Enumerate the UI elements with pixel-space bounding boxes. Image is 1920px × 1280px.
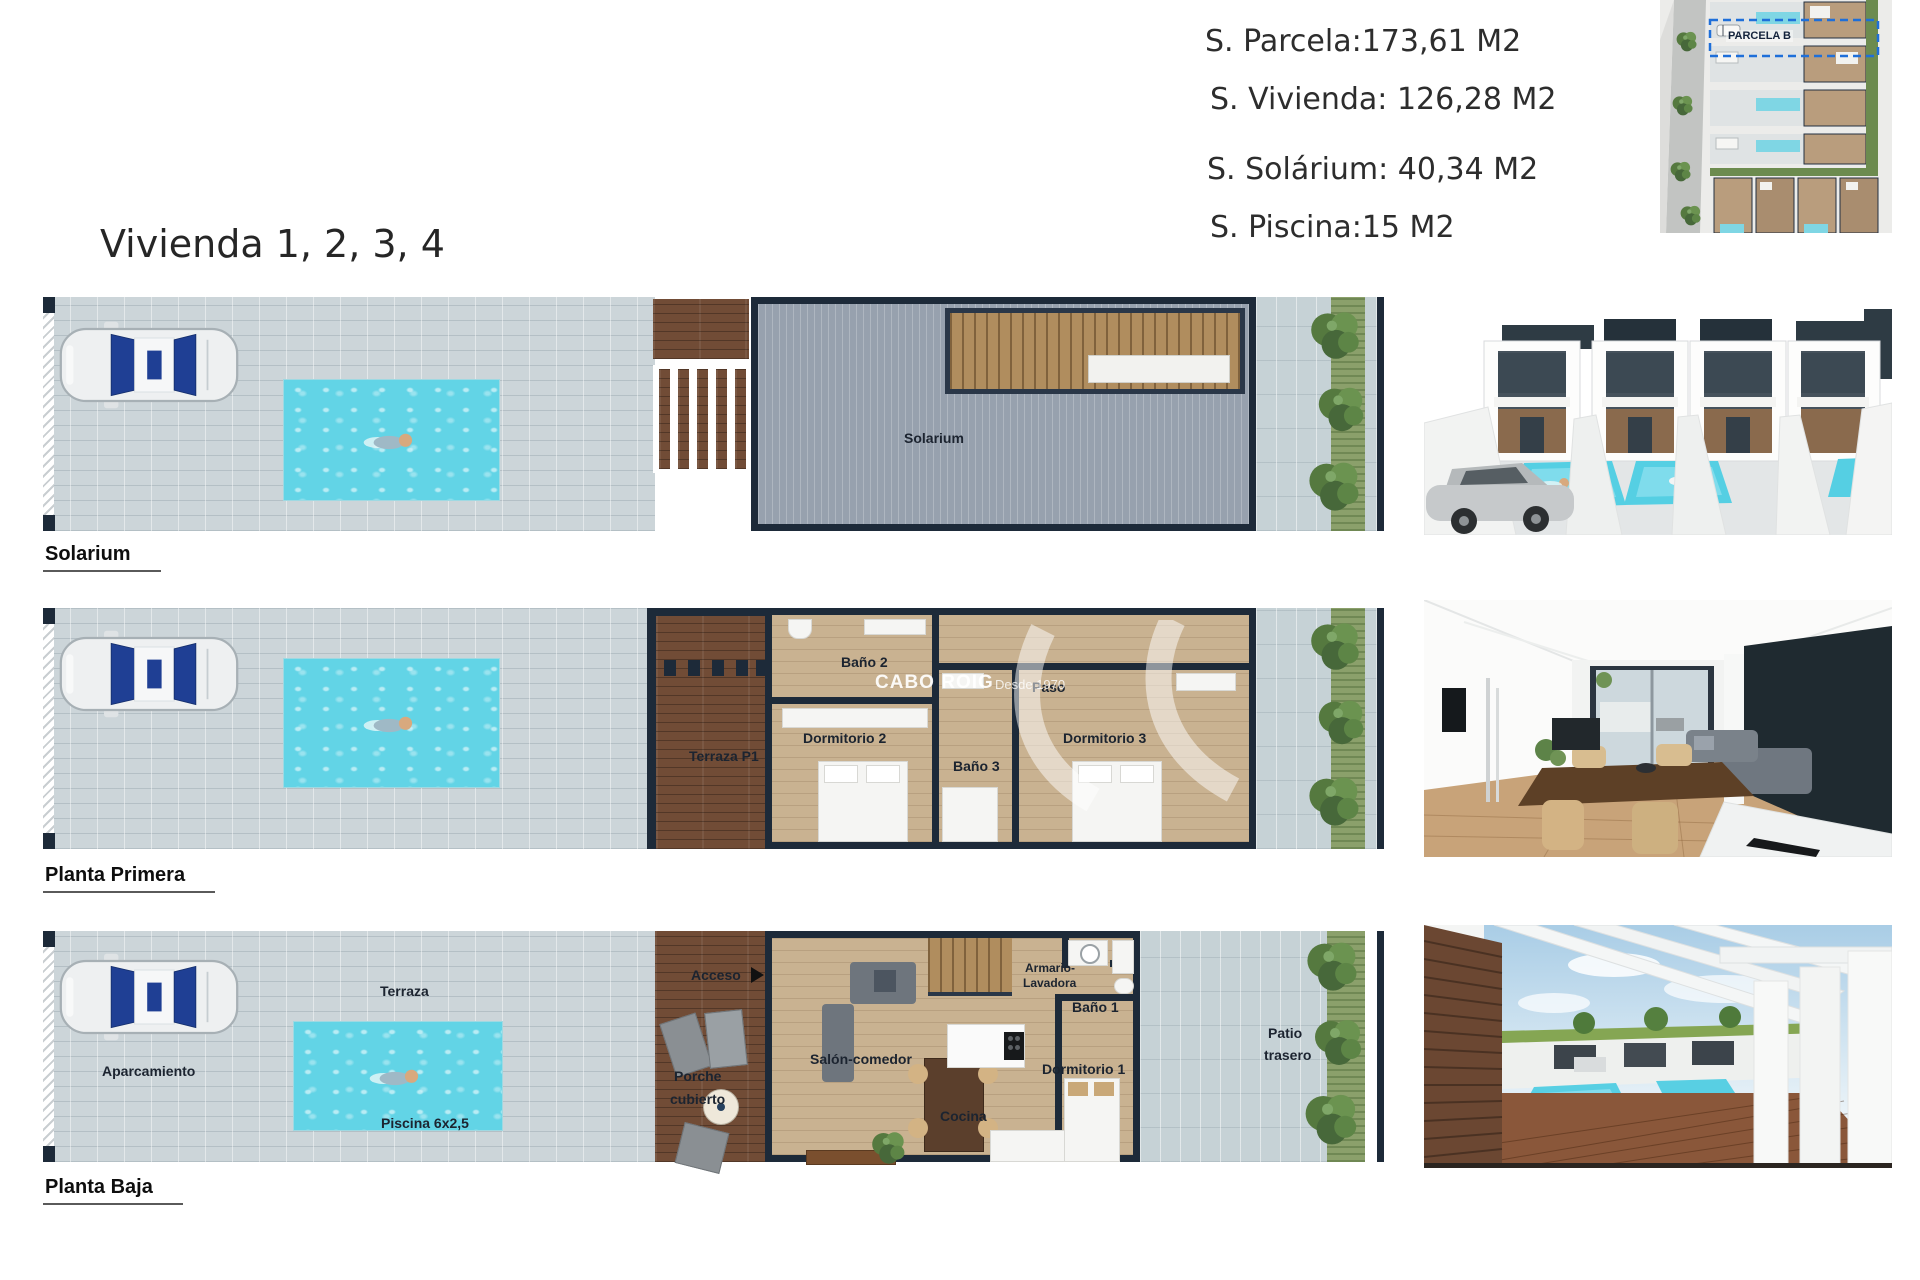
area-parcela: S. Parcela:173,61 M2 <box>1205 24 1521 59</box>
wall-corner <box>43 931 55 947</box>
parcela-b-label: PARCELA B <box>1726 30 1793 42</box>
boundary-hatch <box>43 931 54 1162</box>
room-label-piscina: Piscina 6x2,5 <box>381 1115 469 1131</box>
porche-deck <box>655 931 765 1162</box>
boundary-wall <box>1377 608 1384 849</box>
solarium-deck: Solarium <box>751 297 1256 531</box>
room-label-patio-2: trasero <box>1264 1047 1311 1063</box>
tree-icon <box>1303 768 1367 832</box>
swimmer-icon <box>362 1062 428 1095</box>
hob-icon <box>1004 1032 1024 1060</box>
tree-icon <box>1303 453 1367 517</box>
boundary-hatch <box>43 297 54 531</box>
interior-render-image <box>1424 600 1892 857</box>
terrace-wall <box>647 608 656 849</box>
room-label-porche-2: cubierto <box>670 1091 725 1107</box>
room-label-bano-2: Baño 2 <box>841 654 888 670</box>
room-label-bano-1: Baño 1 <box>1072 999 1119 1015</box>
tv <box>1552 718 1600 750</box>
room-label-solarium: Solarium <box>904 430 964 446</box>
swimmer-icon <box>356 426 422 459</box>
pergola-slats <box>653 365 749 473</box>
terraza-p1-deck <box>656 608 765 849</box>
chair <box>908 1064 928 1084</box>
tree-icon <box>1299 1085 1365 1151</box>
tree-icon <box>1313 379 1371 437</box>
terrace-render-image <box>1424 925 1892 1168</box>
white-pillars <box>1754 951 1892 1168</box>
room-label-dormitorio-1: Dormitorio 1 <box>1042 1061 1125 1077</box>
room-label-cocina: Cocina <box>940 1108 987 1124</box>
watermark-logo-swoosh <box>923 620 1263 840</box>
floor-caption-planta-baja: Planta Baja <box>43 1176 183 1205</box>
watermark-brand: CABO ROIG <box>875 672 994 694</box>
wall-panel <box>1442 688 1466 732</box>
area-solarium: S. Solárium: 40,34 M2 <box>1207 152 1538 187</box>
room-label-aparcamiento: Aparcamiento <box>102 1063 195 1079</box>
chair <box>908 1118 928 1138</box>
pergola-planks <box>653 299 749 359</box>
stairs <box>928 938 1012 996</box>
pool <box>283 379 500 501</box>
wall-corner <box>43 833 55 849</box>
room-label-terraza-p1: Terraza P1 <box>689 748 759 764</box>
car-top-view <box>59 953 239 1041</box>
exterior-render-image <box>1424 291 1892 535</box>
site-lower-units <box>1710 168 1878 233</box>
wall-corner <box>43 297 55 313</box>
swimmer-icon <box>356 709 422 742</box>
stair-landing <box>1088 355 1230 383</box>
interior-planta-baja <box>765 931 1140 1162</box>
area-piscina: S. Piscina:15 M2 <box>1210 210 1455 245</box>
floor-caption-planta-primera: Planta Primera <box>43 864 215 893</box>
floorplan-planta-baja: Aparcamiento Terraza Piscina 6x2,5 Acces… <box>43 925 1384 1168</box>
distant-car <box>1574 1057 1606 1072</box>
tree-icon <box>1305 303 1367 365</box>
sofa-cushion <box>874 970 896 992</box>
sofa <box>822 1004 854 1082</box>
lounge-chair <box>675 1122 730 1174</box>
pool <box>283 658 500 788</box>
tree-icon <box>1309 1011 1369 1071</box>
tree-icon <box>1313 692 1371 750</box>
car-top-view <box>59 630 239 718</box>
wall-corner <box>43 608 55 624</box>
room-label-armario-2: Lavadora <box>1023 976 1076 990</box>
site-plan-thumbnail: PARCELA B <box>1660 0 1892 233</box>
page-title: Vivienda 1, 2, 3, 4 <box>100 222 445 266</box>
tree-icon <box>1305 614 1367 676</box>
floor-caption-solarium: Solarium <box>43 543 161 572</box>
car-top-view <box>59 321 239 409</box>
pillow <box>1068 1082 1088 1096</box>
plant-icon <box>868 1126 910 1168</box>
floorplan-solarium: Solarium <box>43 293 1384 535</box>
pillow <box>1094 1082 1114 1096</box>
dining-table <box>924 1058 984 1152</box>
room-label-acceso: Acceso <box>691 967 741 983</box>
boundary-wall <box>1377 931 1384 1162</box>
acceso-arrow-icon <box>751 967 764 983</box>
boundary-hatch <box>43 608 54 849</box>
room-label-patio-1: Patio <box>1268 1025 1302 1041</box>
watermark-since: Desde 1970 <box>995 677 1065 692</box>
room-label-armario-1: Armario- <box>1025 961 1075 975</box>
wall-corner <box>43 1146 55 1162</box>
room-label-terraza: Terraza <box>380 983 429 999</box>
room-label-porche-1: Porche <box>674 1068 721 1084</box>
washer-icon <box>1080 944 1100 964</box>
room-label-dormitorio-2: Dormitorio 2 <box>803 730 886 746</box>
room-label-salon-comedor: Salón-comedor <box>810 1051 912 1067</box>
brochure-page: Vivienda 1, 2, 3, 4 S. Parcela:173,61 M2… <box>0 0 1920 1280</box>
wall-corner <box>43 515 55 531</box>
floorplan-planta-primera: Terraza P1 Baño 2 Dormito <box>43 600 1384 857</box>
tree-icon <box>1301 933 1365 997</box>
lounge-chair <box>704 1009 748 1069</box>
stairs <box>945 308 1245 394</box>
boundary-wall <box>1377 297 1384 531</box>
area-vivienda: S. Vivienda: 126,28 M2 <box>1210 82 1556 117</box>
